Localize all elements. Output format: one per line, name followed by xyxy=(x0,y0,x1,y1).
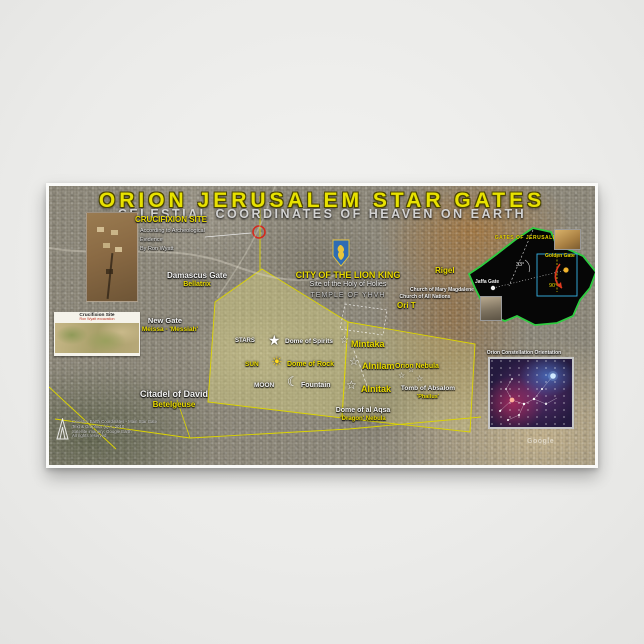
church-all-nations-label: Church of All Nations xyxy=(375,295,475,301)
jaffa-gate-dot xyxy=(491,286,495,290)
angle-33-label: 33° xyxy=(516,262,524,268)
ori-t-label: Ori T xyxy=(397,301,416,310)
star-dot xyxy=(507,419,509,421)
crucifixion-note-3: By Ron Wyatt xyxy=(140,246,174,252)
jaffa-gate-photo xyxy=(480,296,502,321)
star-dot xyxy=(533,398,535,400)
orion-inset-title: Orion Constellation Orientation xyxy=(469,351,579,357)
sun-icon: ☀ xyxy=(271,355,283,368)
tomb-note-label: 'Phallus' xyxy=(388,394,468,400)
crucifixion-pointer-line xyxy=(205,233,251,237)
mintaka-label: Mintaka xyxy=(351,339,385,349)
star-dot xyxy=(505,388,507,390)
city-of-lion-king-label: CITY OF THE LION KING xyxy=(278,270,418,280)
credit-line-4: All rights reserved xyxy=(72,434,157,439)
angle-90-label: 90° xyxy=(549,283,557,289)
star-dot xyxy=(499,410,501,412)
moon-label: MOON xyxy=(254,382,274,389)
crucifixion-note-2: Evidence xyxy=(140,237,163,243)
red-giant-star xyxy=(510,398,515,403)
citadel-of-david-label: Citadel of David xyxy=(124,389,224,399)
mintaka-star-icon: ☆ xyxy=(340,336,349,346)
sun-label: SUN xyxy=(245,361,259,368)
betelgeuse-label: Betelgeuse xyxy=(124,400,224,409)
crucifixion-site-marker xyxy=(253,226,265,238)
card-subtitle: Ron Wyatt excavation xyxy=(55,318,139,322)
crucifixion-note-1: According to Archeological xyxy=(140,228,205,234)
damascus-gate-label: Damascus Gate xyxy=(147,271,247,280)
constellation-line-arm xyxy=(534,398,557,404)
credits-block: Celestial Earth Coordinates - Main Star … xyxy=(72,420,157,439)
alnitak-star-icon: ☆ xyxy=(346,379,357,391)
dome-of-spirits-label: Dome of Spirits xyxy=(285,338,333,345)
golden-gate-photo xyxy=(554,229,581,250)
jerusalem-satellite-map: ORION JERUSALEM STAR GATES CELESTIAL COO… xyxy=(49,186,595,465)
stars-label: STARS xyxy=(235,338,255,345)
page-background: { "poster": { "title": "ORION JERUSALEM … xyxy=(0,0,644,644)
fountain-label: Fountain xyxy=(301,382,331,390)
dome-of-rock-label: Dome of Rock xyxy=(287,361,334,369)
crucifixion-site-title: CRUCIFIXION SITE xyxy=(135,215,207,224)
dome-al-aqsa-label: Dome of al Aqsa xyxy=(323,407,403,415)
card-drawn-map xyxy=(55,323,139,353)
constellation-line-bow xyxy=(506,379,512,400)
temple-mount-dashed-outline xyxy=(340,304,387,335)
nebula-star-icon-2: ☆ xyxy=(408,367,414,374)
jaffa-gate-label: Jaffa Gate xyxy=(475,279,499,285)
crucifixion-map-card: Crucifixion Site Ron Wyatt excavation xyxy=(54,312,140,356)
rigel-label: Rigel xyxy=(435,266,455,275)
moon-icon: ☾ xyxy=(287,375,299,388)
bright-star xyxy=(550,373,556,379)
alnilam-label: Alnilam xyxy=(362,361,395,371)
orion-nebula-label: Orion Nebula xyxy=(395,363,439,371)
photo-buildings xyxy=(97,227,104,232)
star-dot xyxy=(545,403,547,405)
star-icon: ★ xyxy=(268,333,281,347)
golden-gate-label: Golden Gate xyxy=(545,253,575,259)
poster: ORION JERUSALEM STAR GATES CELESTIAL COO… xyxy=(46,183,598,468)
star-dot xyxy=(518,414,520,416)
golden-gate-dot xyxy=(563,267,568,272)
bellatrix-label: Bellatrix xyxy=(147,281,247,289)
alnitak-label: Alnitak xyxy=(361,384,391,394)
nebula-star-icon-1: ☆ xyxy=(398,372,405,380)
alnilam-star-icon: ☆ xyxy=(349,357,359,368)
star-dot xyxy=(523,403,525,405)
jerusalem-lion-crest xyxy=(332,239,350,267)
constellation-line-leg xyxy=(508,404,524,420)
nebula-star-icon-3: ☆ xyxy=(416,375,423,383)
orion-constellation-inset xyxy=(488,357,574,429)
star-dot xyxy=(541,388,543,390)
dragon-nebula-label: 'Dragon' Nebula xyxy=(323,416,403,423)
star-dot xyxy=(511,378,513,380)
publisher-logo xyxy=(56,418,69,440)
google-watermark: Google xyxy=(527,438,554,445)
photo-crack xyxy=(107,253,114,299)
constellation-line-main xyxy=(500,376,553,411)
crucifixion-aerial-photo xyxy=(86,212,138,302)
tomb-of-absalom-label: Tomb of Absalom xyxy=(388,385,468,392)
gates-of-jerusalem-inset: GATES OF JERUSALEM Golden Gate Jaffa Gat… xyxy=(463,226,595,328)
constellation-lines xyxy=(490,359,572,427)
